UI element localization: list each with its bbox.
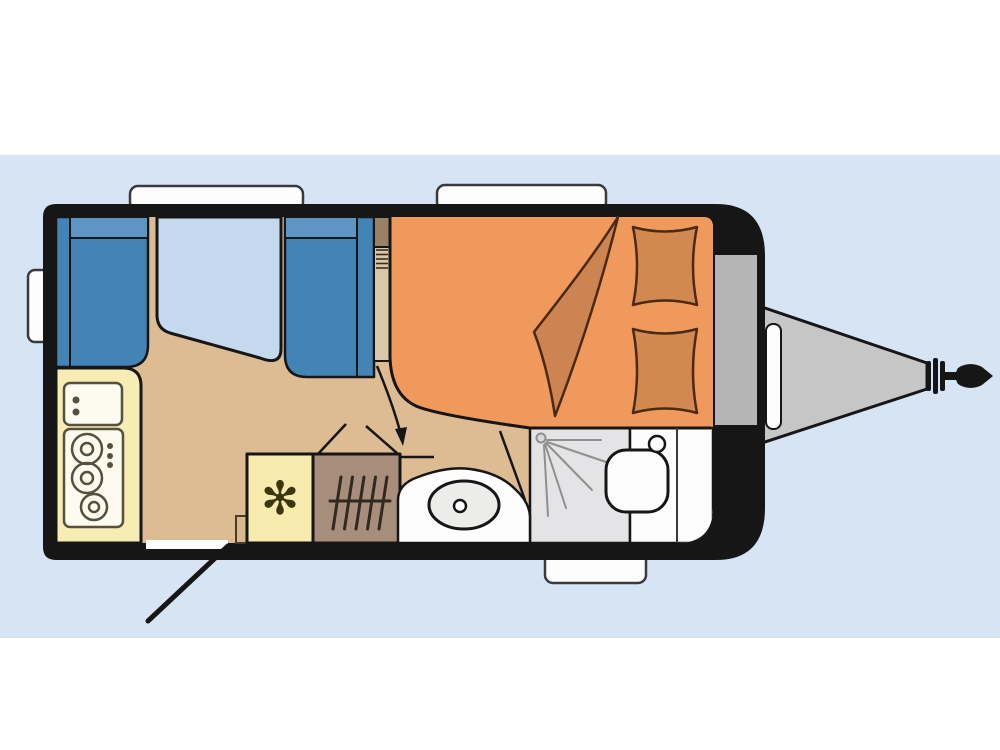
floor-plan-image: ✻ — [0, 0, 1000, 750]
toilet-flush-button — [649, 436, 665, 452]
sink-unit-top — [64, 383, 122, 425]
washbasin-drain — [454, 500, 466, 512]
hitch-ridge-1 — [926, 361, 931, 391]
hob-knob-3 — [107, 462, 113, 468]
entrance-door-opening — [146, 540, 228, 549]
dinette-bench-right — [285, 217, 374, 377]
hitch-ridge-2 — [933, 358, 938, 394]
sink-knob-2 — [73, 409, 80, 416]
bench-right-backrest — [285, 217, 357, 238]
bed-pillow-bottom — [633, 329, 697, 413]
hob-knob-2 — [107, 453, 113, 459]
gas-locker — [715, 255, 757, 425]
toilet-bowl — [606, 450, 668, 512]
dinette-bench-left — [56, 217, 148, 367]
hob-knob-1 — [107, 443, 113, 449]
bench-right-seat — [285, 217, 374, 377]
fridge: ✻ — [247, 454, 313, 543]
sink-knob-1 — [73, 397, 80, 404]
bench-left-backrest — [70, 217, 148, 238]
wardrobe-divider — [374, 217, 390, 361]
heater — [313, 454, 400, 543]
kitchen-sink-unit — [64, 383, 122, 425]
fridge-snowflake-icon: ✻ — [261, 471, 300, 525]
entry-step — [236, 516, 247, 543]
hob-unit — [64, 429, 123, 527]
drawbar-pad — [766, 324, 781, 429]
divider-cap — [374, 217, 390, 247]
floor-plan-canvas: ✻ — [0, 0, 1000, 750]
bed-pillow-top — [633, 227, 697, 305]
hitch-ridge-3 — [940, 361, 945, 391]
